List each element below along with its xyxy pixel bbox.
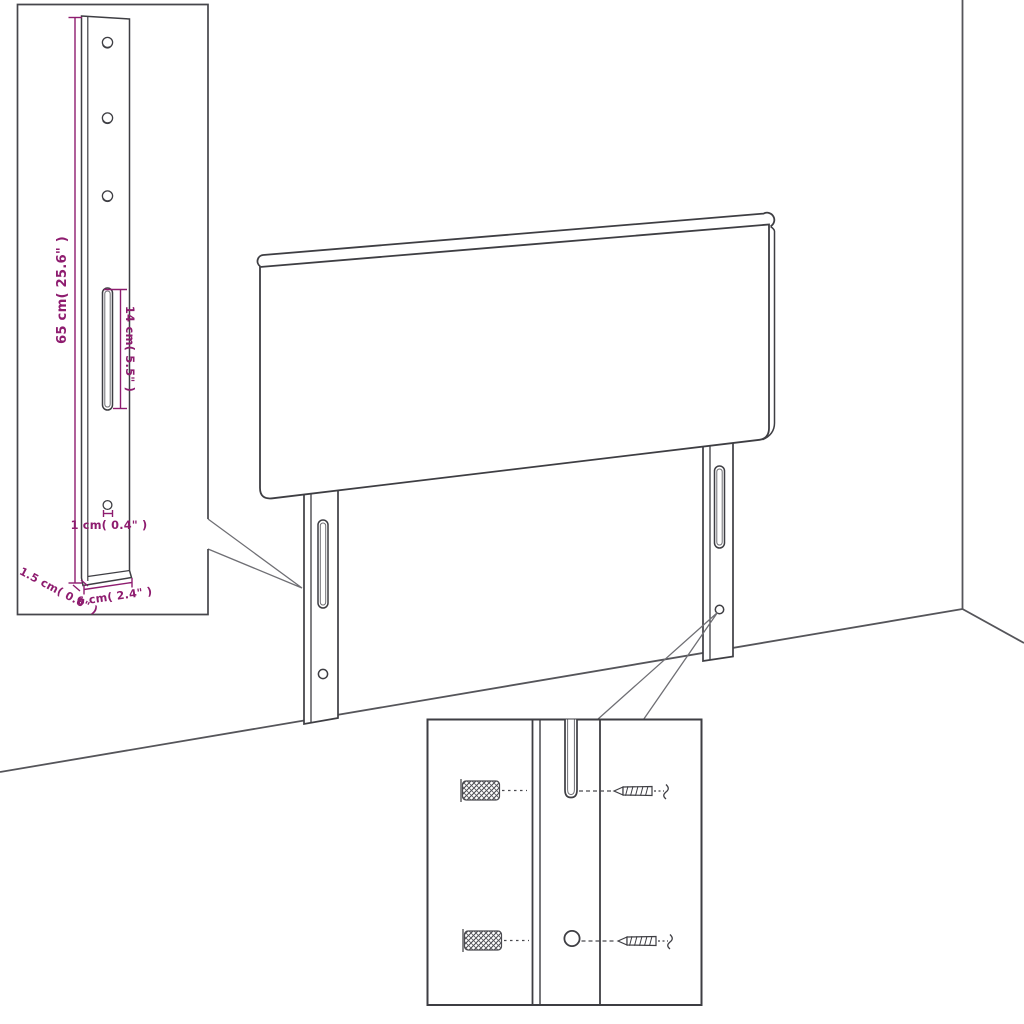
right-leg-slot bbox=[715, 466, 725, 548]
callout-wedge-left bbox=[208, 519, 302, 588]
strip-slot bbox=[565, 720, 577, 798]
headboard-left-leg bbox=[304, 468, 338, 724]
strip-hole bbox=[564, 931, 579, 946]
dim-thickness-tick-1 bbox=[73, 585, 80, 591]
left-leg-slot bbox=[318, 520, 328, 608]
headboard-front-face bbox=[260, 225, 769, 499]
wall-plug-body bbox=[463, 781, 500, 800]
wall-floor-line-right bbox=[963, 609, 1024, 643]
wall-plug-body bbox=[465, 931, 502, 950]
leg-height-label: 65 cm( 25.6" ) bbox=[55, 236, 70, 344]
slot-length-label: 14 cm( 5.5" ) bbox=[123, 306, 137, 392]
leg-detail-slot bbox=[103, 288, 113, 410]
headboard-panel bbox=[257, 213, 774, 499]
diagram-svg: 65 cm( 25.6" ) 14 cm( 5.5" ) 1 cm( 0.4" … bbox=[0, 0, 1024, 1024]
callout-wedge-right bbox=[598, 613, 718, 720]
mounting-detail-inset bbox=[428, 720, 702, 1006]
leg-detail-board bbox=[82, 16, 132, 586]
hole-size-label: 1 cm( 0.4" ) bbox=[71, 519, 148, 532]
leg-detail-inset: 65 cm( 25.6" ) 14 cm( 5.5" ) 1 cm( 0.4" … bbox=[17, 5, 208, 618]
headboard-right-leg bbox=[703, 418, 733, 661]
headboard-assembly-diagram: 65 cm( 25.6" ) 14 cm( 5.5" ) 1 cm( 0.4" … bbox=[0, 0, 1024, 1024]
